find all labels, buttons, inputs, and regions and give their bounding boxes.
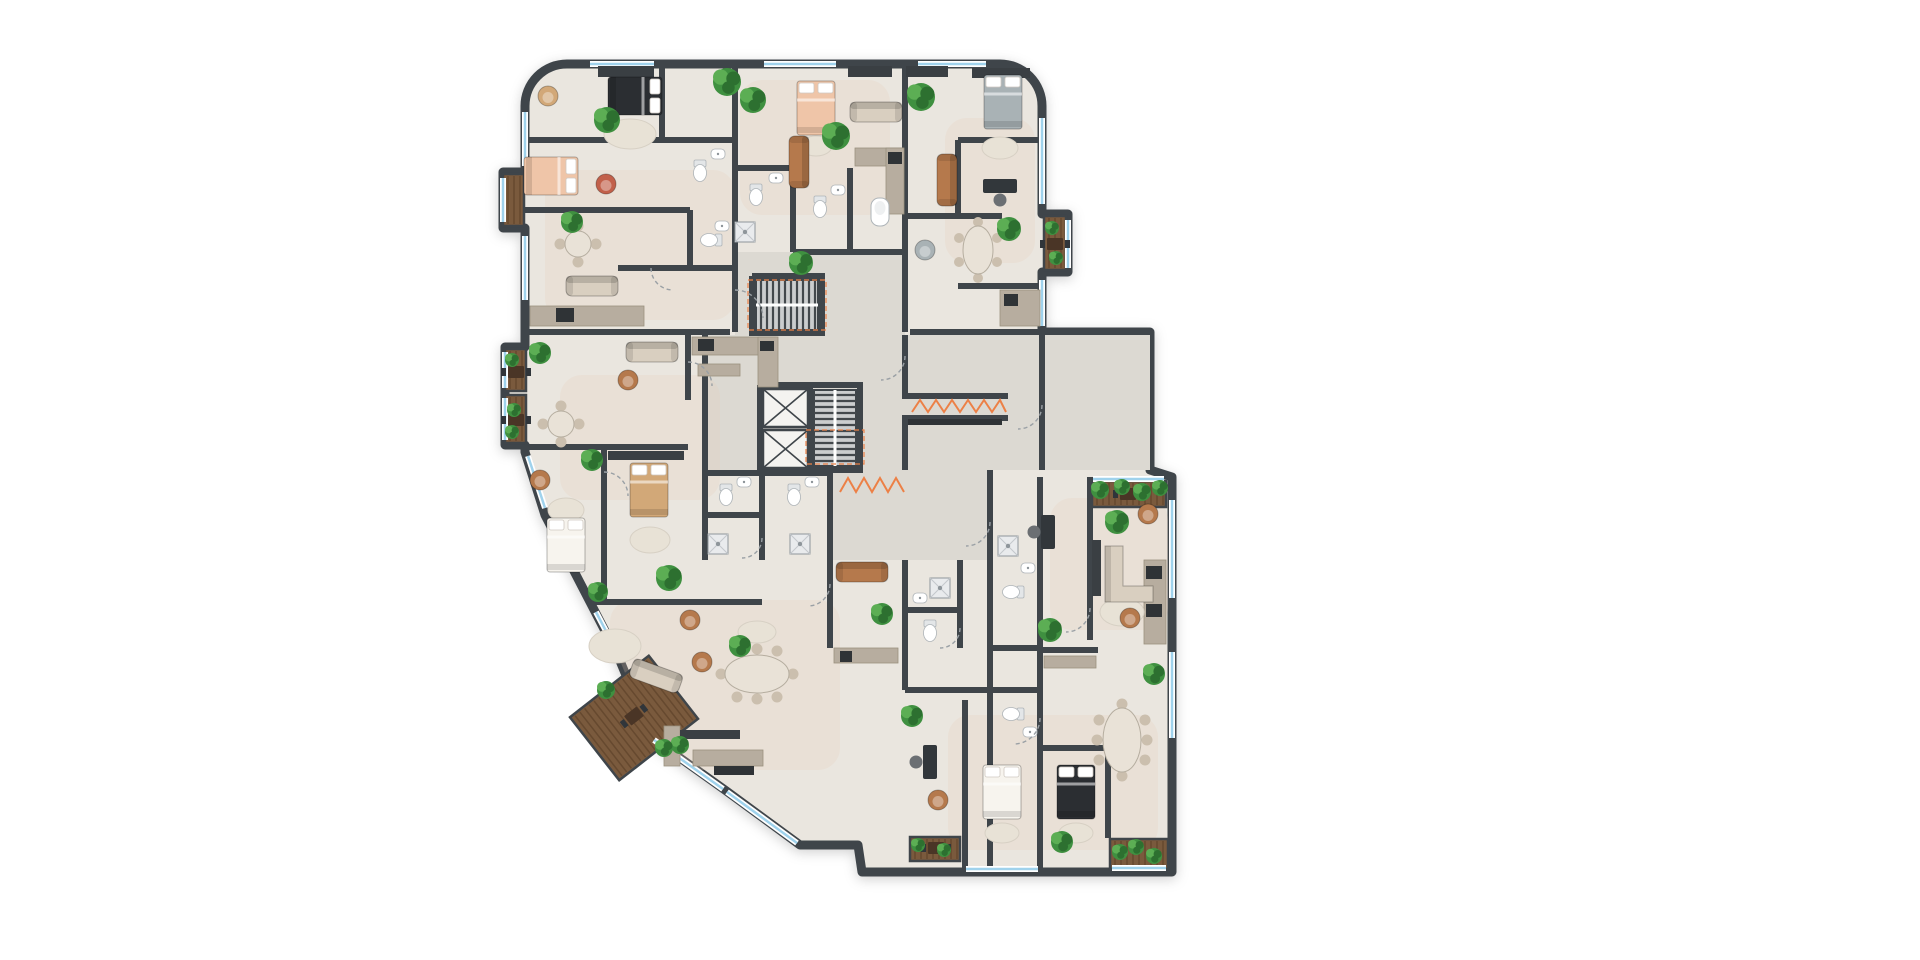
plant — [901, 705, 923, 727]
sofa — [836, 562, 888, 582]
toilet — [814, 196, 827, 218]
bed — [983, 765, 1021, 819]
bed — [524, 157, 578, 195]
sink — [715, 221, 729, 231]
plant — [655, 739, 673, 757]
plant — [937, 843, 951, 857]
plant — [740, 87, 766, 113]
toilet — [694, 160, 707, 182]
plant — [729, 635, 751, 657]
kitchen-counter — [1044, 656, 1096, 668]
rug — [630, 527, 670, 553]
bed — [608, 77, 662, 115]
toilet — [701, 234, 723, 247]
wardrobe — [608, 451, 684, 460]
armchair — [1120, 608, 1140, 628]
bed — [630, 463, 668, 517]
toilet — [1003, 586, 1025, 599]
plant — [1152, 480, 1168, 496]
plant — [588, 582, 608, 602]
toilet — [750, 184, 763, 206]
wardrobe — [848, 66, 892, 77]
kitchen-counter — [698, 364, 740, 376]
plant — [671, 736, 689, 754]
shower — [998, 536, 1018, 556]
rug — [589, 629, 641, 663]
bed — [984, 75, 1022, 129]
screenshot-canvas — [0, 0, 1920, 960]
appliance — [1004, 294, 1018, 306]
plant — [1133, 483, 1151, 501]
appliance — [698, 339, 714, 351]
staircase — [756, 280, 818, 330]
staircase — [814, 390, 856, 466]
toilet — [1003, 708, 1025, 721]
plant — [656, 565, 682, 591]
sofa — [789, 136, 809, 188]
plant — [597, 681, 615, 699]
wardrobe — [680, 730, 740, 739]
appliance — [1146, 604, 1162, 617]
appliance — [1146, 566, 1162, 579]
plant — [581, 449, 603, 471]
sink — [769, 173, 783, 183]
wardrobe — [1092, 540, 1101, 596]
plant — [1049, 251, 1063, 265]
appliance — [840, 651, 852, 662]
sofa — [626, 342, 678, 362]
kitchen-counter — [530, 306, 644, 326]
appliance — [714, 766, 754, 775]
plant — [561, 211, 583, 233]
plant — [507, 403, 521, 417]
wardrobe — [906, 66, 948, 77]
sink — [1023, 727, 1037, 737]
kitchen-counter — [693, 750, 763, 766]
tub — [871, 198, 889, 226]
armchair — [618, 370, 638, 390]
toilet — [720, 484, 733, 506]
wardrobe — [598, 66, 654, 77]
plant — [1091, 481, 1109, 499]
plant — [1045, 221, 1059, 235]
bed — [1057, 765, 1095, 819]
elevator — [763, 389, 808, 427]
armchair — [692, 652, 712, 672]
armchair — [596, 174, 616, 194]
armchair — [538, 86, 558, 106]
appliance — [908, 419, 1002, 425]
plant — [911, 838, 925, 852]
sofa — [850, 102, 902, 122]
plant — [505, 353, 519, 367]
plant — [529, 342, 551, 364]
plant — [713, 68, 741, 96]
plant — [822, 122, 850, 150]
plant — [997, 217, 1021, 241]
sofa — [937, 154, 957, 206]
armchair — [530, 470, 550, 490]
rug — [985, 823, 1019, 843]
plant — [871, 603, 893, 625]
plant — [907, 83, 935, 111]
plant — [789, 251, 813, 275]
plant — [1146, 848, 1162, 864]
shower — [735, 222, 755, 242]
sink — [831, 185, 845, 195]
plant — [1114, 479, 1130, 495]
sink — [913, 593, 927, 603]
bed — [547, 518, 585, 572]
wood-deck-balcony — [503, 174, 524, 226]
plant — [594, 107, 620, 133]
toilet — [924, 620, 937, 642]
sink — [711, 149, 725, 159]
plant — [1051, 831, 1073, 853]
sofa — [566, 276, 618, 296]
armchair — [1138, 504, 1158, 524]
armchair — [928, 790, 948, 810]
plant — [1038, 618, 1062, 642]
shower — [930, 578, 950, 598]
sink — [1021, 563, 1035, 573]
appliance — [556, 308, 574, 322]
elevator — [763, 430, 808, 468]
plant — [1143, 663, 1165, 685]
shower — [708, 534, 728, 554]
armchair — [680, 610, 700, 630]
appliance — [888, 152, 902, 164]
plant — [1128, 839, 1144, 855]
plant — [1112, 844, 1128, 860]
armchair — [915, 240, 935, 260]
rug — [982, 137, 1018, 159]
sink — [805, 477, 819, 487]
shower — [790, 534, 810, 554]
floorplan-svg — [0, 0, 1920, 960]
plant — [1105, 510, 1129, 534]
appliance — [760, 341, 774, 351]
toilet — [788, 484, 801, 506]
plant — [505, 425, 519, 439]
sink — [737, 477, 751, 487]
